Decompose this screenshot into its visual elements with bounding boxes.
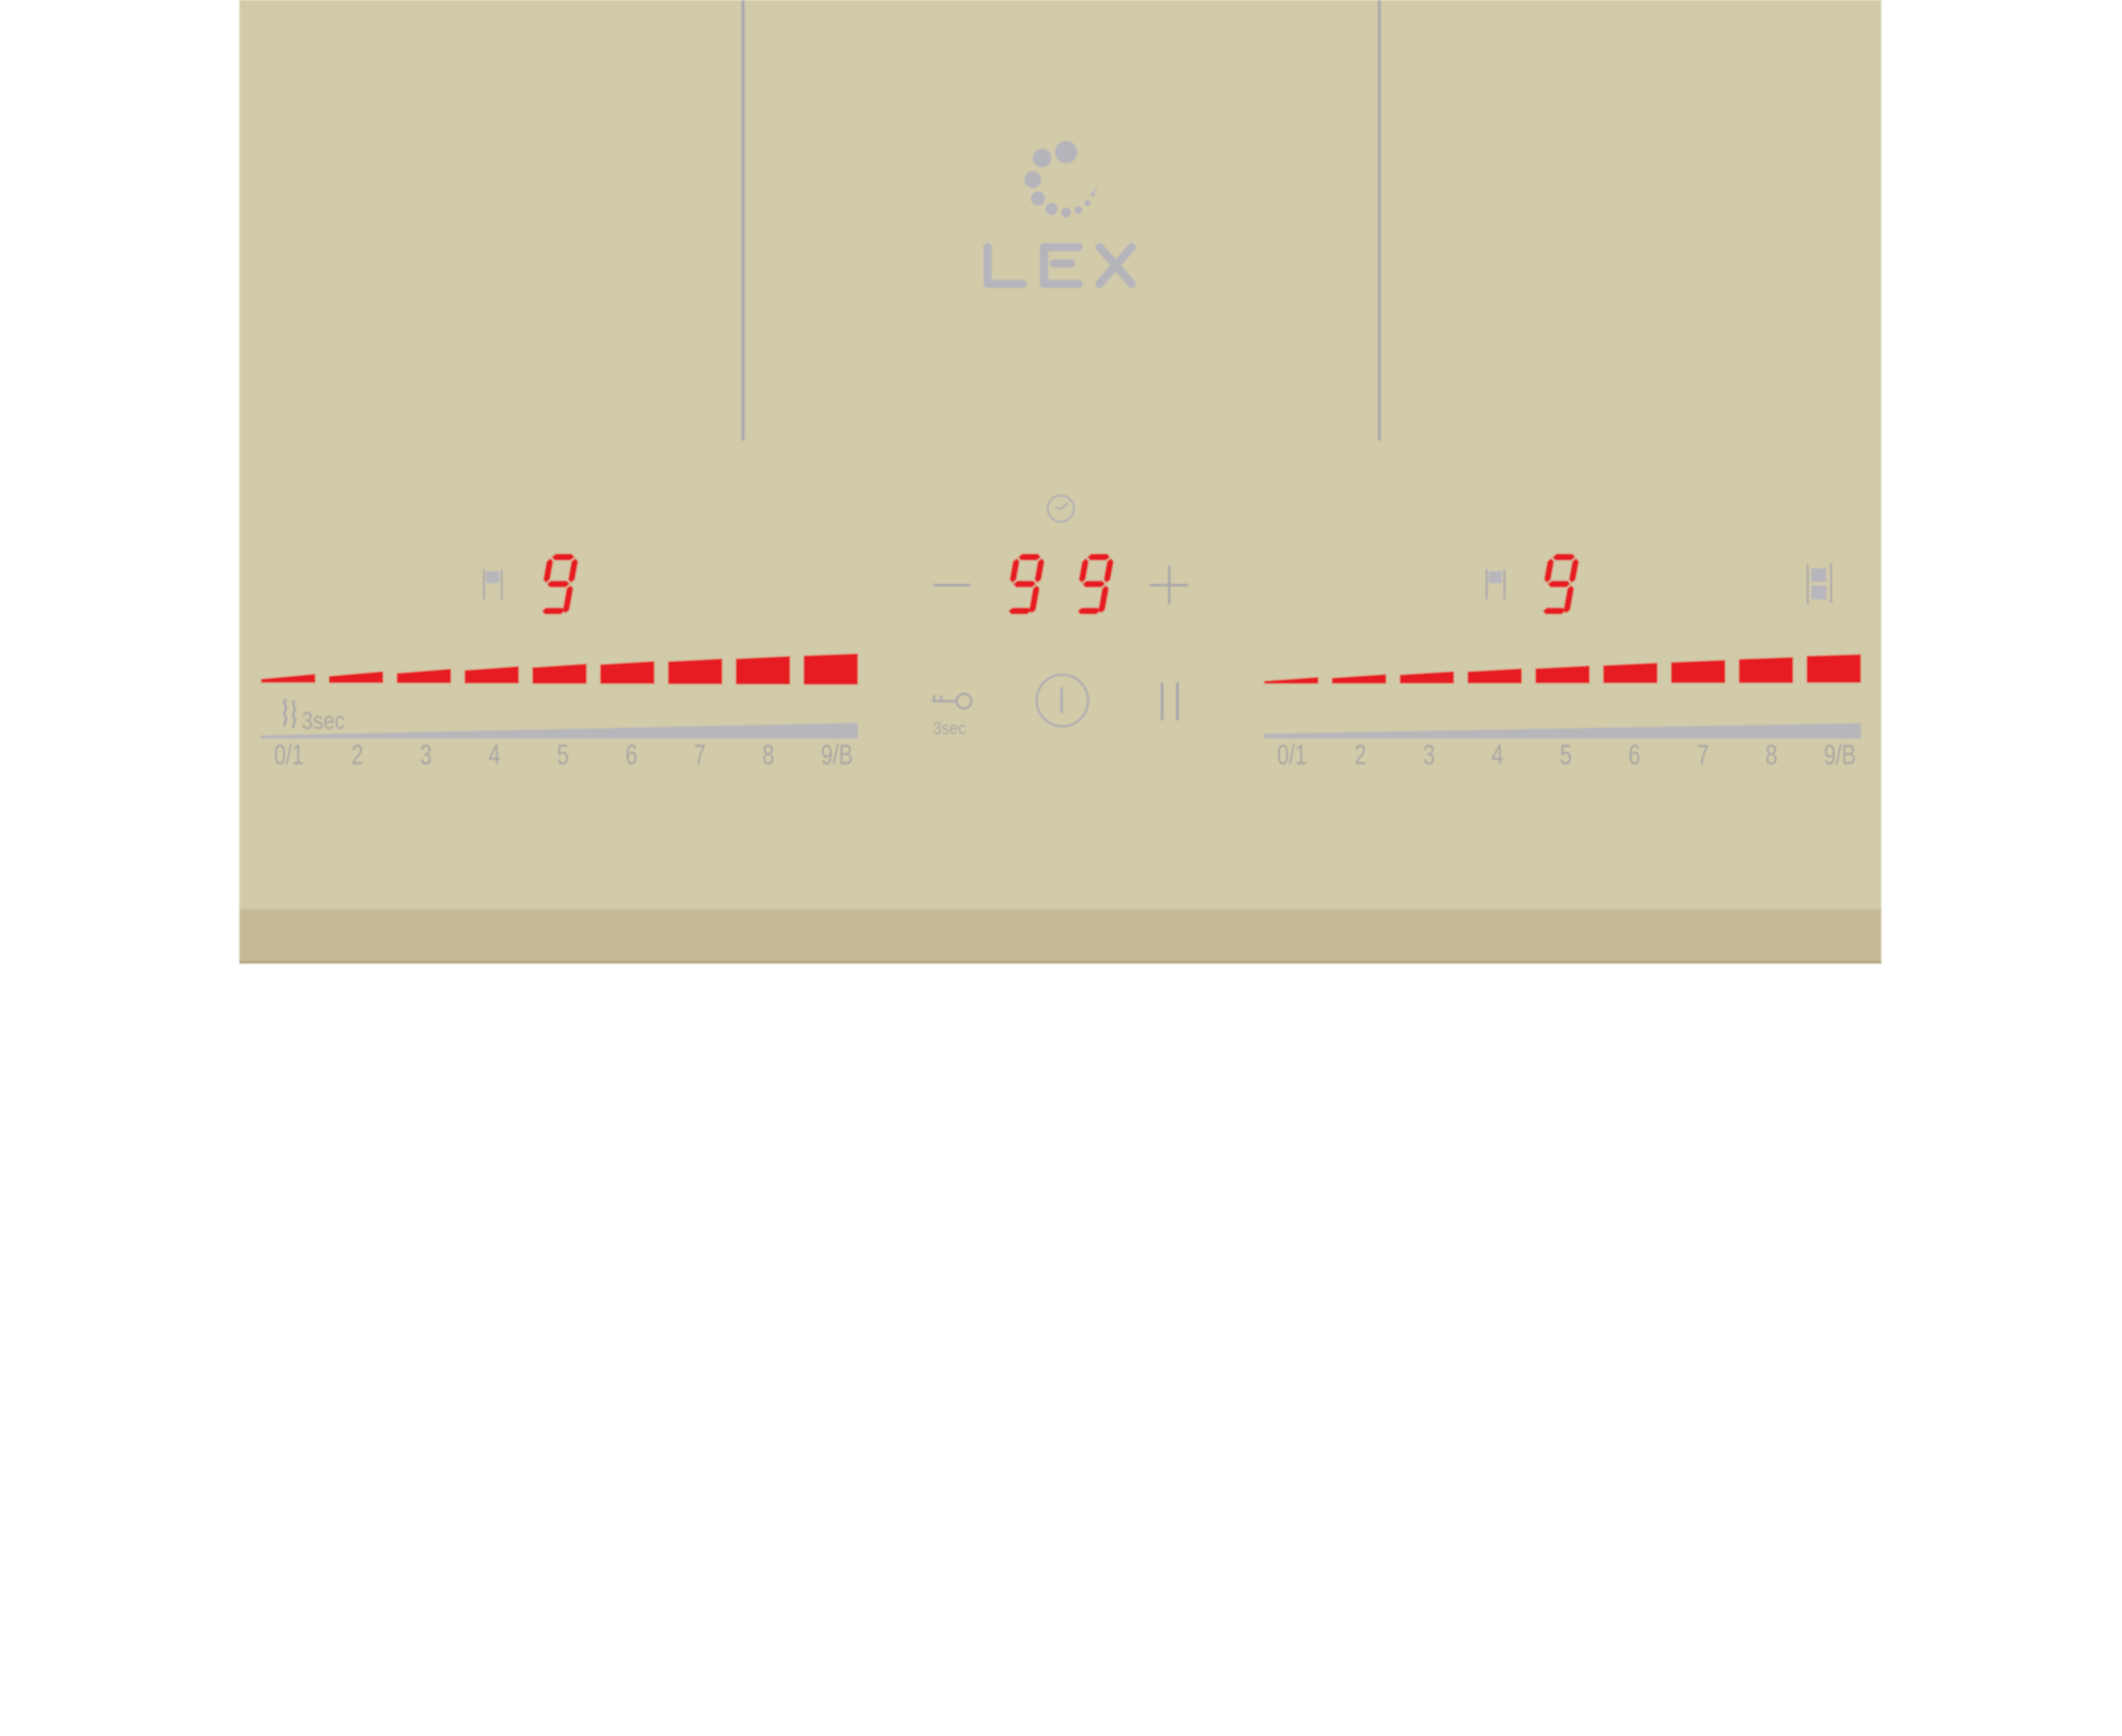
svg-text:3sec: 3sec <box>933 719 966 738</box>
svg-text:3: 3 <box>420 739 432 770</box>
svg-text:4: 4 <box>488 739 500 770</box>
svg-text:0/1: 0/1 <box>1277 739 1307 770</box>
svg-text:3: 3 <box>1423 739 1435 770</box>
svg-text:9/B: 9/B <box>821 739 852 770</box>
svg-text:3sec: 3sec <box>302 708 345 735</box>
svg-text:5: 5 <box>557 739 569 770</box>
svg-text:7: 7 <box>694 739 706 770</box>
svg-text:9/B: 9/B <box>1824 739 1855 770</box>
svg-text:8: 8 <box>762 739 774 770</box>
svg-text:5: 5 <box>1560 739 1572 770</box>
svg-text:0/1: 0/1 <box>274 739 304 770</box>
svg-text:4: 4 <box>1491 739 1504 770</box>
svg-text:6: 6 <box>625 739 637 770</box>
svg-text:2: 2 <box>1354 739 1367 770</box>
svg-text:7: 7 <box>1697 739 1709 770</box>
svg-text:8: 8 <box>1765 739 1777 770</box>
svg-text:2: 2 <box>351 739 364 770</box>
svg-text:6: 6 <box>1628 739 1640 770</box>
